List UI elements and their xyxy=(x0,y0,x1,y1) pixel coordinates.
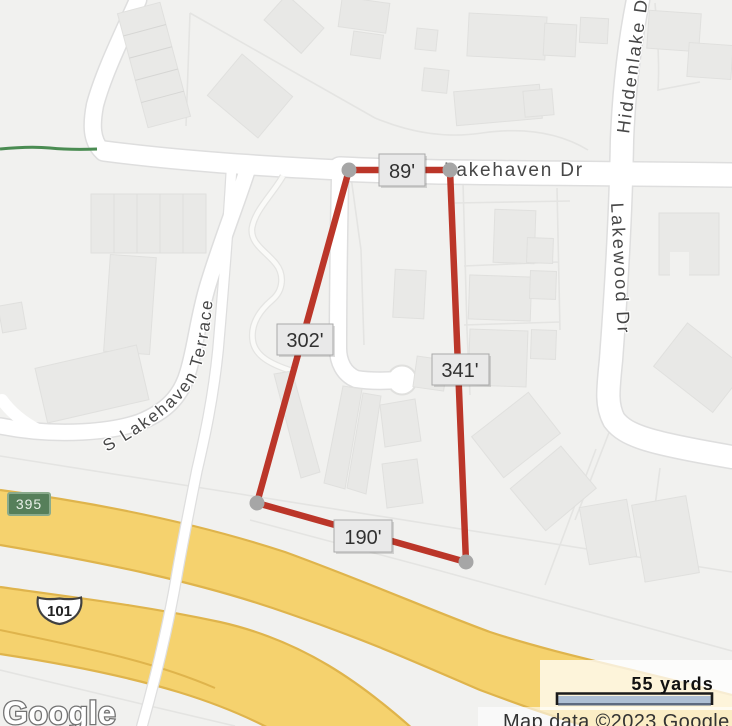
svg-text:Google: Google xyxy=(3,695,116,726)
svg-text:190': 190' xyxy=(344,527,381,549)
svg-text:Lakehaven Dr: Lakehaven Dr xyxy=(444,160,584,181)
svg-text:Map data ©2023 Google: Map data ©2023 Google xyxy=(503,711,730,726)
svg-text:55 yards: 55 yards xyxy=(631,674,714,694)
svg-text:302': 302' xyxy=(286,330,323,352)
svg-text:341': 341' xyxy=(441,360,478,382)
svg-text:395: 395 xyxy=(16,496,42,512)
svg-text:101: 101 xyxy=(47,603,72,620)
svg-text:89': 89' xyxy=(389,161,415,183)
